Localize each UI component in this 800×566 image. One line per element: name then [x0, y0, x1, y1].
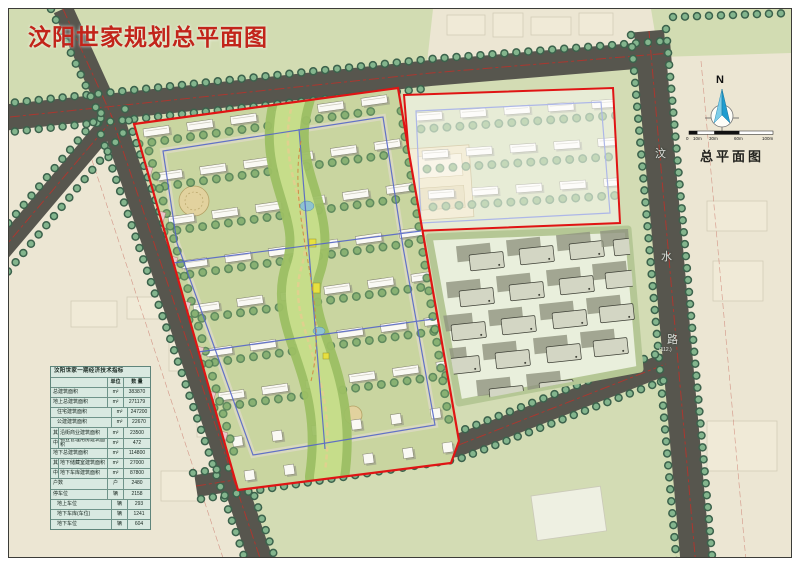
row-label: 住宅建筑面积 — [51, 408, 112, 417]
row-unit: m² — [108, 459, 124, 468]
page-title: 汶阳世家规划总平面图 — [28, 18, 268, 52]
row-marker: 中 — [53, 439, 59, 448]
row-unit: m² — [108, 449, 124, 458]
row-label: 地上总建筑面积 — [51, 398, 108, 407]
row-value: 87800 — [124, 469, 150, 478]
row-value: 2480 — [124, 479, 150, 488]
header-unit-cell: 单位 — [108, 378, 124, 387]
road-name-char-1: 汶 — [655, 145, 666, 161]
scale-tick-100: 100m — [762, 136, 773, 141]
row-marker: 其 — [53, 459, 59, 468]
row-value: 247200 — [128, 408, 150, 417]
table-row: 地上车位辆293 — [51, 499, 150, 509]
row-unit: m² — [108, 469, 124, 478]
table-row: 总建筑面积m²383870 — [51, 387, 150, 397]
row-value: 27000 — [124, 459, 150, 468]
scale-bar-graphic — [689, 131, 773, 134]
row-label: 公建建筑面积 — [51, 418, 112, 427]
row-value: 604 — [128, 520, 150, 529]
road-name-char-3: 路 — [667, 331, 678, 347]
header-value-cell: 数 量 — [124, 378, 150, 387]
row-label: 中物业管理用房建筑面积 — [51, 439, 108, 448]
row-value: 114800 — [124, 449, 150, 458]
indicator-table-body: 单位 数 量 总建筑面积m²383870地上总建筑面积m²271179住宅建筑面… — [51, 377, 150, 530]
row-unit: 户 — [108, 479, 124, 488]
row-unit: 辆 — [112, 520, 128, 529]
row-unit: m² — [108, 428, 124, 437]
row-value: 22670 — [128, 418, 150, 427]
row-label: 地下总建筑面积 — [51, 449, 108, 458]
row-unit: 辆 — [112, 500, 128, 509]
row-value: 271179 — [124, 398, 150, 407]
row-label: 其沿街商业建筑面积 — [51, 428, 108, 437]
table-row: 地下总建筑面积m²114800 — [51, 448, 150, 458]
indicator-table: 汶阳世家一期经济技术指标 单位 数 量 总建筑面积m²383870地上总建筑面积… — [50, 366, 151, 530]
row-label: 地下车库(车位) — [51, 510, 112, 519]
row-value: 2158 — [124, 490, 150, 499]
road-name-char-2: 水 — [661, 248, 672, 264]
row-label: 户数 — [51, 479, 108, 488]
scale-tick-10: 10m — [693, 136, 702, 141]
row-label: 其地下储藏室建筑面积 — [51, 459, 108, 468]
row-label: 地下车位 — [51, 520, 112, 529]
table-row: 其地下储藏室建筑面积m²27000 — [51, 458, 150, 468]
scale-tick-0: 0 — [686, 136, 689, 141]
table-row: 中地下车库建筑面积m²87800 — [51, 468, 150, 478]
scale-tick-30: 30m — [709, 136, 718, 141]
table-row: 地下车库(车位)辆1241 — [51, 509, 150, 519]
table-row: 地下车位辆604 — [51, 519, 150, 529]
plan-type-label: 总平面图 — [700, 146, 764, 165]
row-label: 地上车位 — [51, 500, 112, 509]
row-marker: 其 — [53, 428, 59, 437]
row-label: 停车位 — [51, 490, 108, 499]
row-value: 23500 — [124, 428, 150, 437]
compass-north-label: N — [716, 74, 724, 86]
header-label-cell — [51, 378, 108, 387]
row-label: 中地下车库建筑面积 — [51, 469, 108, 478]
road-name-note: (112.) — [659, 347, 672, 353]
table-row: 地上总建筑面积m²271179 — [51, 397, 150, 407]
table-row: 中物业管理用房建筑面积m²472 — [51, 438, 150, 448]
table-row: 公建建筑面积m²22670 — [51, 417, 150, 427]
table-header-row: 单位 数 量 — [51, 377, 150, 387]
row-unit: m² — [108, 388, 124, 397]
context-building-south — [531, 486, 607, 540]
row-unit: m² — [112, 408, 128, 417]
row-marker: 中 — [53, 469, 59, 478]
row-unit: 辆 — [108, 490, 124, 499]
row-label: 总建筑面积 — [51, 388, 108, 397]
table-row: 户数户2480 — [51, 478, 150, 488]
row-unit: m² — [108, 439, 124, 448]
row-unit: m² — [112, 418, 128, 427]
table-row: 其沿街商业建筑面积m²23500 — [51, 427, 150, 437]
scale-tick-60: 60m — [734, 136, 743, 141]
indicator-table-title: 汶阳世家一期经济技术指标 — [51, 367, 150, 377]
table-row: 住宅建筑面积m²247200 — [51, 407, 150, 417]
row-value: 472 — [124, 439, 150, 448]
row-unit: m² — [108, 398, 124, 407]
row-value: 293 — [128, 500, 150, 509]
table-row: 停车位辆2158 — [51, 489, 150, 499]
row-value: 383870 — [124, 388, 150, 397]
drawing-page: 汶阳世家规划总平面图 N 总平面图 0 10m 30m 60m 100m 汶 水… — [0, 0, 800, 566]
row-unit: 辆 — [112, 510, 128, 519]
row-value: 1241 — [128, 510, 150, 519]
